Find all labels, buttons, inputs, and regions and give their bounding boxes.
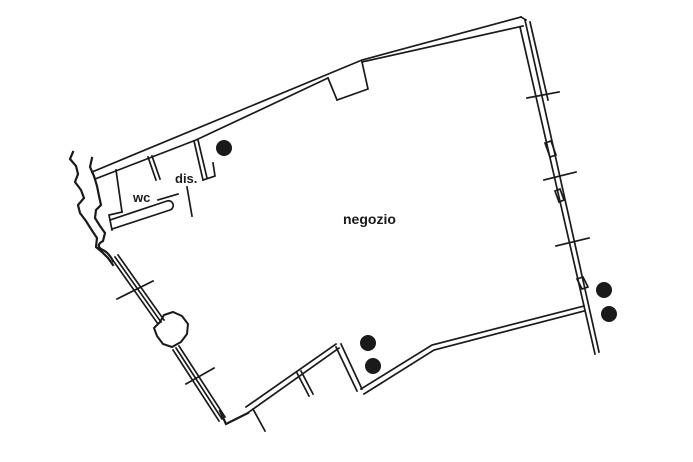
- left-wall-upper-line-2: [115, 257, 161, 322]
- wc-door-dash: [158, 194, 178, 200]
- left-wall-lower-line-2: [176, 348, 222, 419]
- room-label-wc: wc: [132, 190, 150, 205]
- top-wall-notch: [328, 62, 368, 100]
- left-wall-lower-line-3: [179, 346, 225, 417]
- column-marker: [601, 306, 617, 322]
- floor-plan-drawing: wcdis.negozio: [0, 0, 693, 462]
- right-wall-outer-line: [525, 20, 599, 352]
- column-marker: [360, 335, 376, 351]
- top-wall-inner-line-left: [95, 78, 328, 179]
- wc-dis-partition-line-2: [152, 156, 160, 179]
- bottom-left-wall-upper: [246, 344, 336, 407]
- bottom-step-edge-2: [341, 344, 362, 389]
- left-wall-lower-line-1: [173, 350, 219, 421]
- bottom-right-wall-upper: [361, 306, 584, 389]
- bottom-step-edge-1: [336, 347, 357, 391]
- bottom-left-corner: [220, 411, 248, 424]
- right-wall-third-line: [530, 22, 548, 100]
- dis-right-wall-line-2: [198, 140, 207, 178]
- room-label-dis: dis.: [175, 171, 197, 186]
- right-wall-tick-3: [556, 238, 589, 246]
- top-wall-inner-line-right: [362, 26, 523, 62]
- column-marker: [216, 140, 232, 156]
- wc-dis-partition-line-1: [148, 157, 156, 180]
- room-label-negozio: negozio: [343, 211, 396, 227]
- left-wall-upper-line-1: [112, 259, 158, 324]
- column-marker: [596, 282, 612, 298]
- bottom-door-swing-line: [253, 409, 265, 431]
- bottom-right-wall-lower: [364, 311, 584, 394]
- column-marker: [365, 358, 381, 374]
- floor-plan: wcdis.negozio: [0, 0, 693, 462]
- bottom-left-wall-lower: [249, 348, 339, 412]
- wc-left-wall: [116, 170, 122, 212]
- left-wall-pillar: [154, 312, 188, 347]
- dis-door-line: [187, 187, 192, 216]
